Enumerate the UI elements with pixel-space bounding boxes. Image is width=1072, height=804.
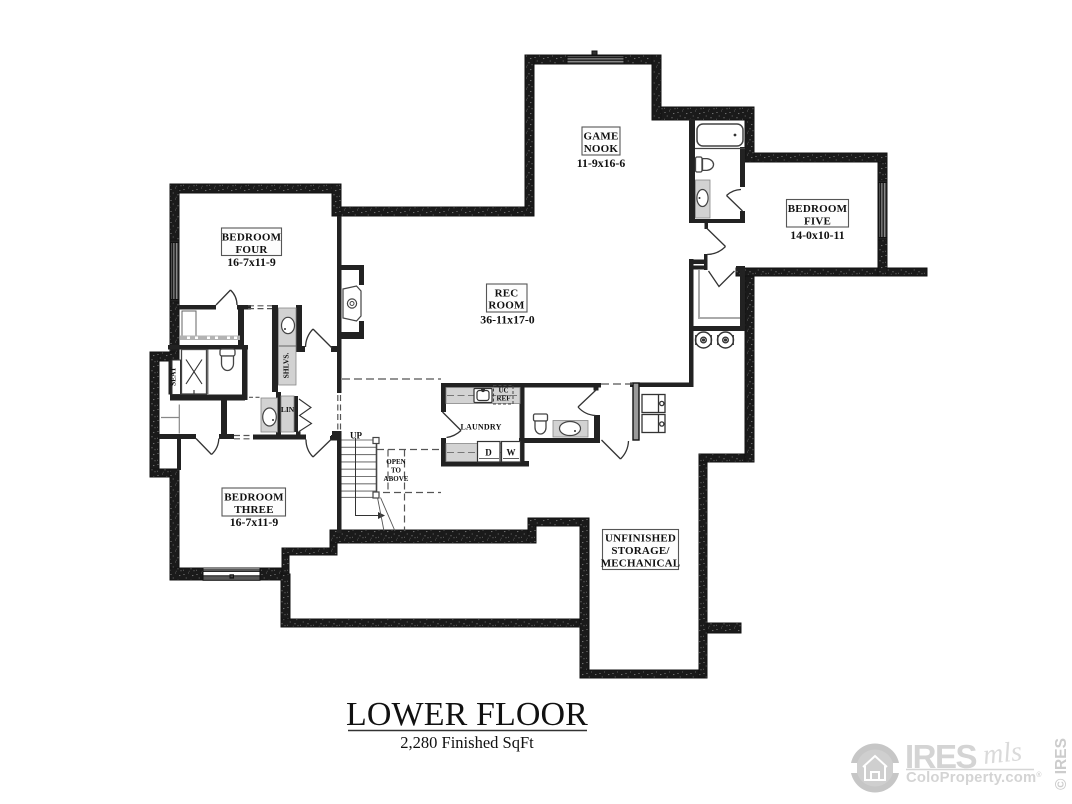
svg-text:mls: mls (981, 736, 1023, 771)
svg-text:STORAGE/: STORAGE/ (611, 545, 670, 557)
svg-text:GAME: GAME (583, 131, 618, 143)
svg-text:© IRES: © IRES (1053, 738, 1070, 790)
svg-text:LAUNDRY: LAUNDRY (460, 423, 501, 432)
svg-text:BEDROOM: BEDROOM (224, 492, 284, 504)
svg-text:11-9x16-6: 11-9x16-6 (577, 156, 626, 170)
svg-text:W: W (507, 448, 516, 458)
svg-text:14-0x10-11: 14-0x10-11 (790, 228, 844, 242)
svg-text:SEAT: SEAT (169, 367, 178, 386)
svg-text:UNFINISHED: UNFINISHED (605, 533, 676, 545)
svg-text:UP: UP (350, 431, 362, 441)
svg-text:2,280 Finished SqFt: 2,280 Finished SqFt (400, 733, 534, 752)
svg-text:D: D (485, 448, 492, 458)
svg-text:LIN: LIN (281, 405, 295, 414)
svg-text:TO: TO (391, 467, 402, 475)
svg-text:FIVE: FIVE (804, 216, 831, 228)
svg-text:NOOK: NOOK (584, 143, 619, 155)
svg-text:36-11x17-0: 36-11x17-0 (480, 313, 534, 327)
svg-text:16-7x11-9: 16-7x11-9 (227, 255, 276, 269)
svg-text:ROOM: ROOM (488, 300, 525, 312)
svg-text:ColoProperty.com®: ColoProperty.com® (906, 770, 1042, 786)
svg-text:BEDROOM: BEDROOM (222, 232, 282, 244)
svg-text:LOWER FLOOR: LOWER FLOOR (346, 696, 588, 733)
svg-text:SHLVS.: SHLVS. (282, 352, 291, 378)
svg-text:ABOVE: ABOVE (384, 475, 409, 483)
svg-text:UC: UC (498, 387, 508, 395)
svg-text:OPEN: OPEN (386, 458, 405, 466)
svg-text:REC: REC (495, 288, 519, 300)
svg-text:BEDROOM: BEDROOM (788, 203, 848, 215)
svg-text:MECHANICAL: MECHANICAL (601, 558, 681, 570)
svg-text:REF: REF (497, 395, 511, 403)
svg-text:16-7x11-9: 16-7x11-9 (230, 515, 279, 529)
